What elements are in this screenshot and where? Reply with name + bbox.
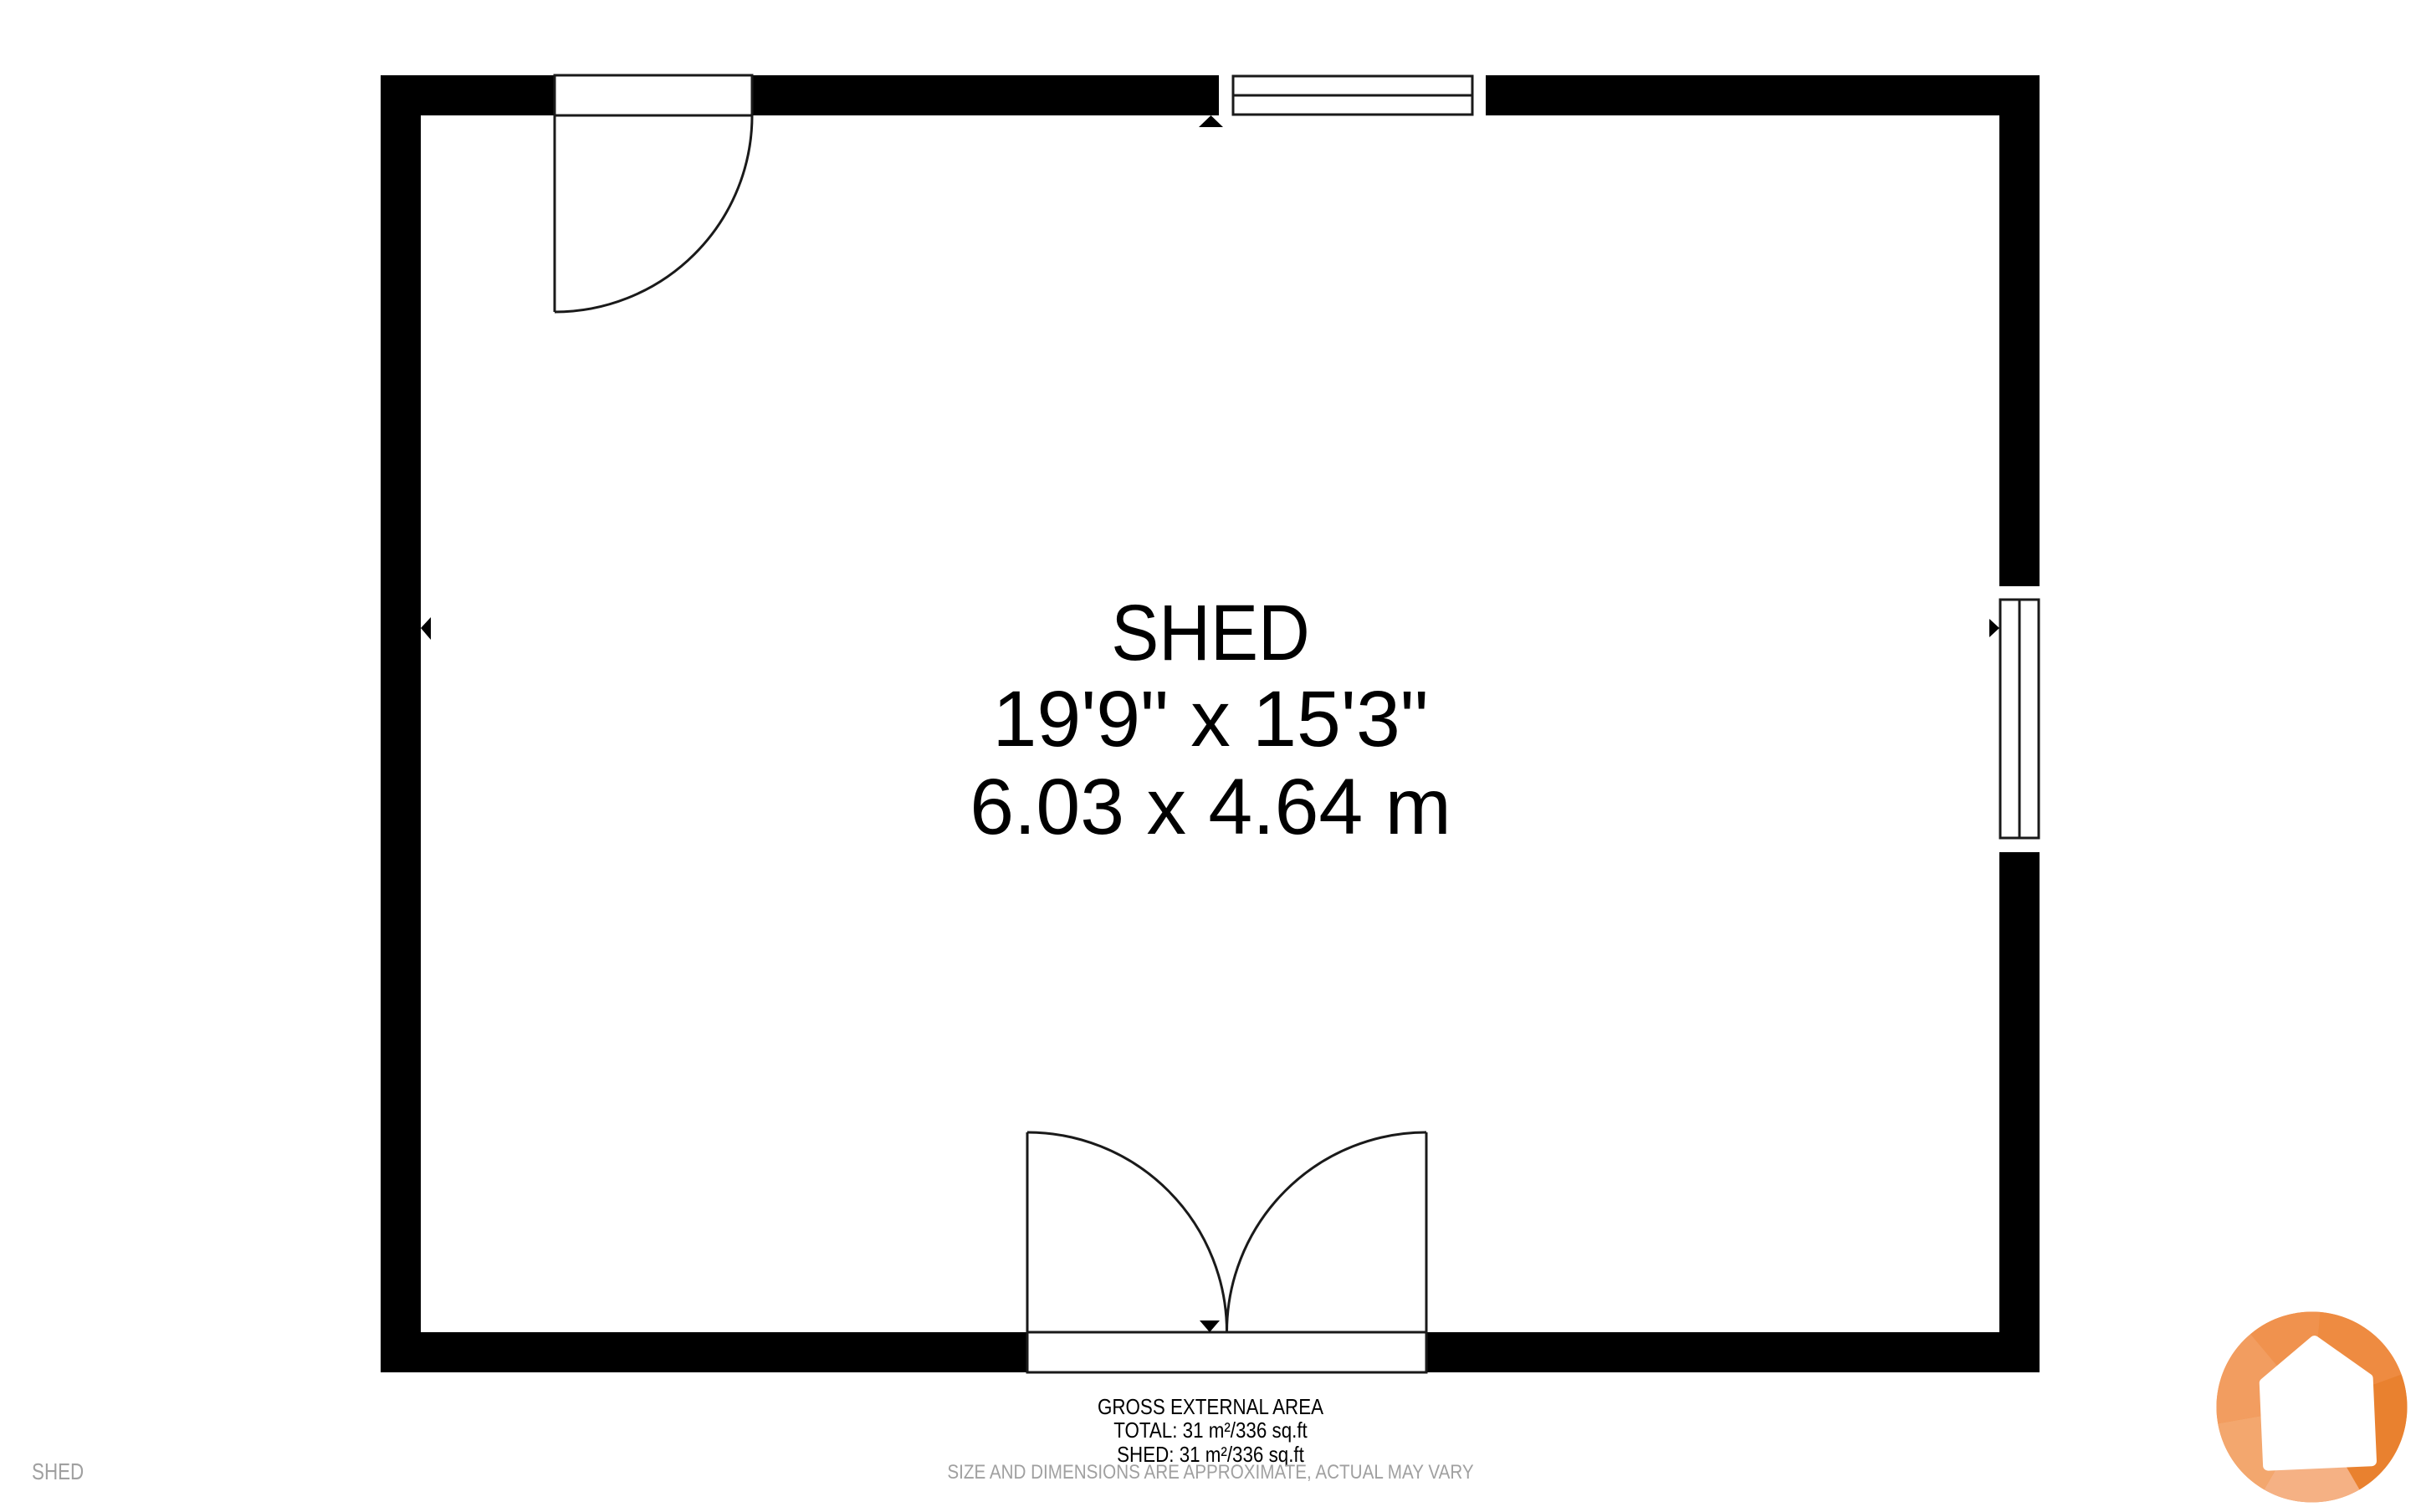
page-watermark-label: SHED <box>32 1460 84 1484</box>
door-opening-box <box>1027 1332 1426 1372</box>
room-dimensions-imperial: 19'9" x 15'3" <box>0 680 2421 759</box>
door-opening-box <box>555 75 752 115</box>
arrow-down-icon <box>1200 1320 1220 1332</box>
double-door-bottom <box>1027 1132 1426 1372</box>
room-name-label: SHED <box>121 594 2301 673</box>
footer-area-title: GROSS EXTERNAL AREA <box>170 1396 2252 1417</box>
floorplan-page: SHED 19'9" x 15'3" 6.03 x 4.64 m GROSS E… <box>0 0 2421 1512</box>
door-swing-arc-right <box>1227 1132 1427 1332</box>
door-swing-arc <box>555 115 752 312</box>
room-dimensions-metric: 6.03 x 4.64 m <box>0 768 2421 847</box>
arrow-up-icon <box>1199 115 1223 127</box>
footer-disclaimer: SIZE AND DIMENSIONS ARE APPROXIMATE, ACT… <box>170 1463 2252 1483</box>
footer-total-area: TOTAL: 31 m²/336 sq.ft <box>170 1419 2252 1441</box>
door-swing-arc-left <box>1027 1132 1227 1332</box>
window-top <box>1219 74 1486 116</box>
entry-door-top <box>555 75 752 312</box>
